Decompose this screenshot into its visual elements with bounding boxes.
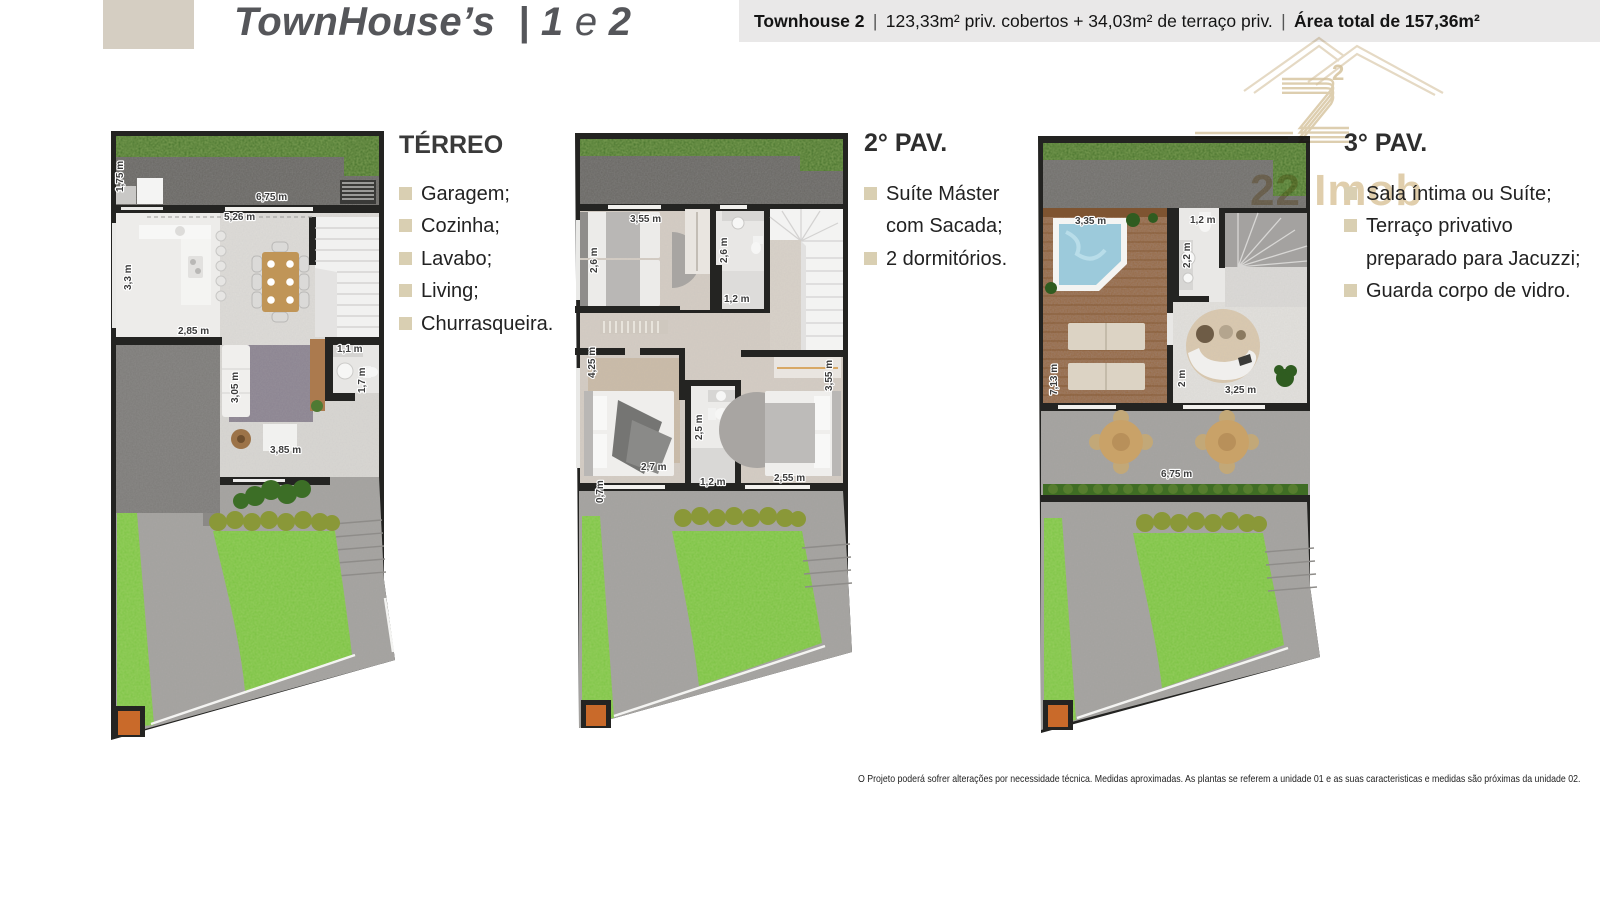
svg-text:1,75 m: 1,75 m <box>115 161 126 192</box>
svg-text:0,7m: 0,7m <box>595 480 606 503</box>
svg-text:3,55 m: 3,55 m <box>824 360 835 391</box>
svg-text:2,6 m: 2,6 m <box>719 237 730 263</box>
svg-text:2,6 m: 2,6 m <box>589 247 600 273</box>
svg-text:1,1 m: 1,1 m <box>337 344 363 355</box>
svg-text:3,05 m: 3,05 m <box>230 372 241 403</box>
svg-text:6,75 m: 6,75 m <box>256 192 287 203</box>
svg-text:7,13 m: 7,13 m <box>1049 364 1060 395</box>
svg-text:3,3 m: 3,3 m <box>123 264 134 290</box>
svg-text:2,2 m: 2,2 m <box>1182 242 1193 268</box>
svg-text:1,2 m: 1,2 m <box>700 477 726 488</box>
svg-text:1,2 m: 1,2 m <box>724 294 750 305</box>
svg-text:6,75 m: 6,75 m <box>1161 469 1192 480</box>
svg-text:2,85 m: 2,85 m <box>178 326 209 337</box>
svg-text:3,25 m: 3,25 m <box>1225 385 1256 396</box>
svg-text:2 m: 2 m <box>1177 370 1188 387</box>
svg-text:1,7 m: 1,7 m <box>357 367 368 393</box>
svg-text:3,35 m: 3,35 m <box>1075 216 1106 227</box>
svg-text:3,85 m: 3,85 m <box>270 445 301 456</box>
svg-text:5,26 m: 5,26 m <box>224 212 255 223</box>
svg-text:2,5 m: 2,5 m <box>694 414 705 440</box>
svg-text:2,55 m: 2,55 m <box>774 473 805 484</box>
svg-text:3,55 m: 3,55 m <box>630 214 661 225</box>
svg-text:2: 2 <box>1332 60 1344 85</box>
svg-text:2,7 m: 2,7 m <box>641 462 667 473</box>
svg-text:4,25 m: 4,25 m <box>587 347 598 378</box>
